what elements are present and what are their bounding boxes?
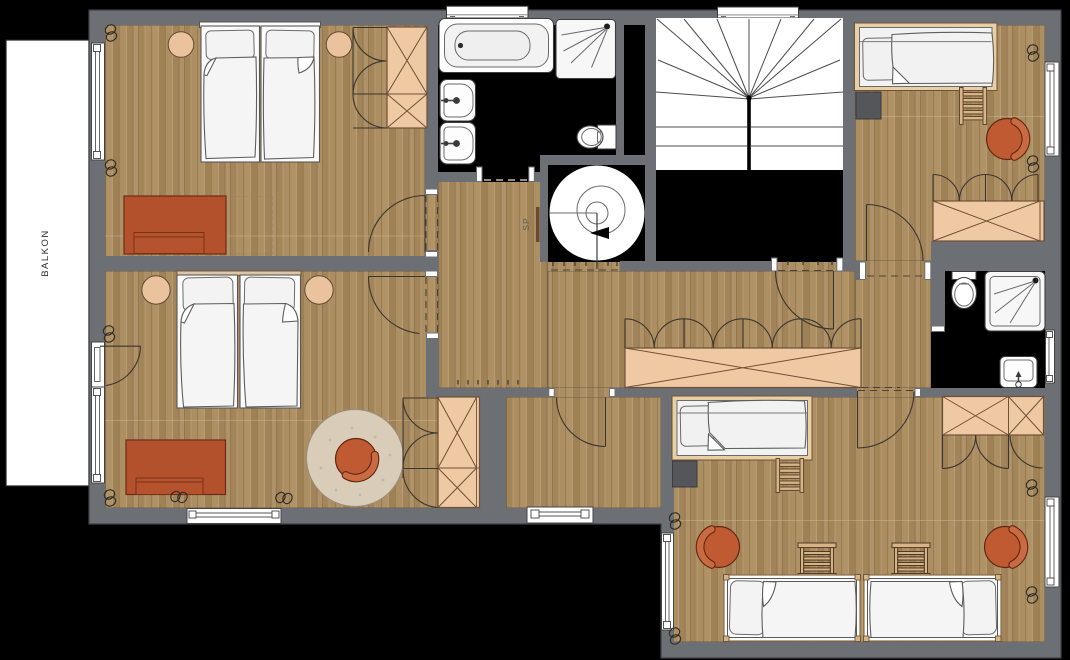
svg-text:BALKON: BALKON	[40, 229, 51, 277]
svg-text:SP: SP	[521, 217, 531, 230]
